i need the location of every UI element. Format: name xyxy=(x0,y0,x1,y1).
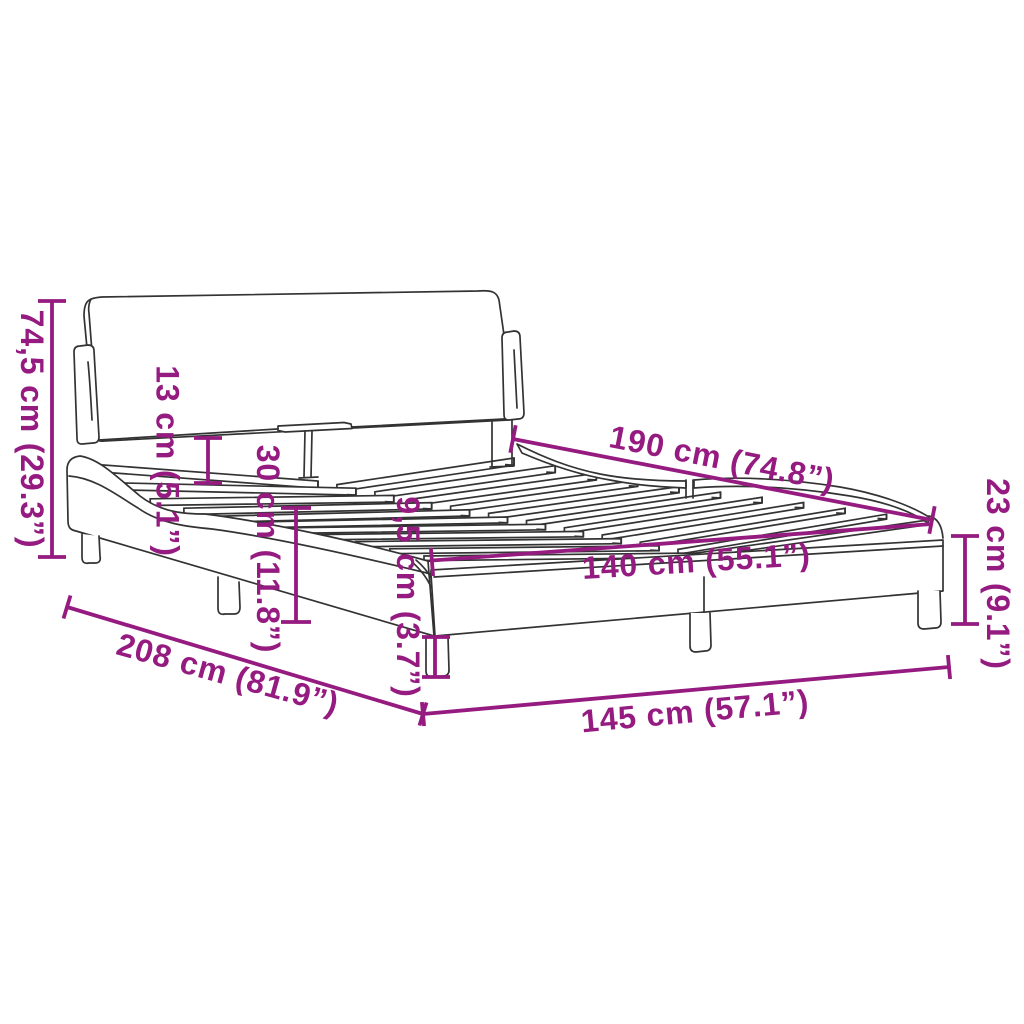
svg-text:74,5 cm (29.3”): 74,5 cm (29.3”) xyxy=(14,310,50,549)
svg-text:13 cm (5.1”): 13 cm (5.1”) xyxy=(150,365,186,557)
svg-text:23 cm (9.1”): 23 cm (9.1”) xyxy=(980,478,1016,670)
svg-text:30 cm (11.8”): 30 cm (11.8”) xyxy=(250,445,286,654)
svg-text:9,5 cm (3.7”): 9,5 cm (3.7”) xyxy=(390,496,426,697)
